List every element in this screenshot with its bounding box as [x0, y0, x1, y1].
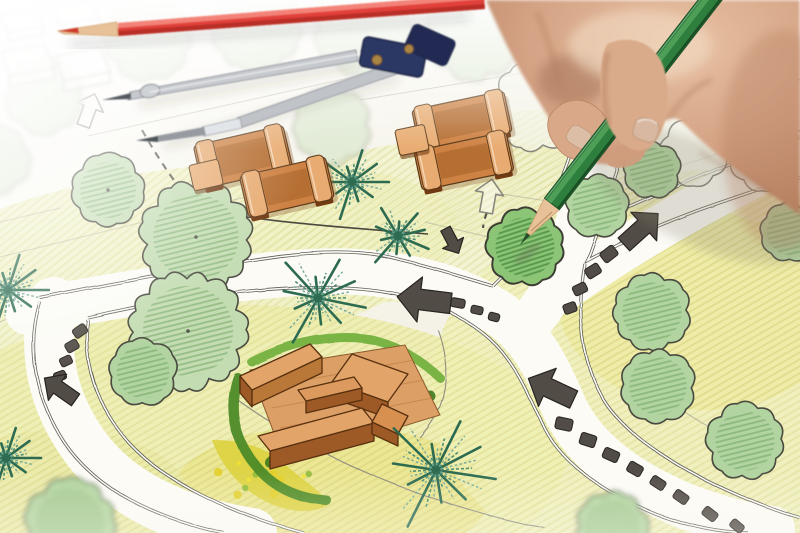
landscape-plan-photo: [0, 0, 800, 533]
bottom-haze: [0, 470, 800, 533]
flower-dot: [237, 461, 241, 465]
compass-brass-screw: [372, 55, 382, 65]
stepping-stone: [450, 297, 465, 308]
plan-tree: [621, 349, 695, 424]
